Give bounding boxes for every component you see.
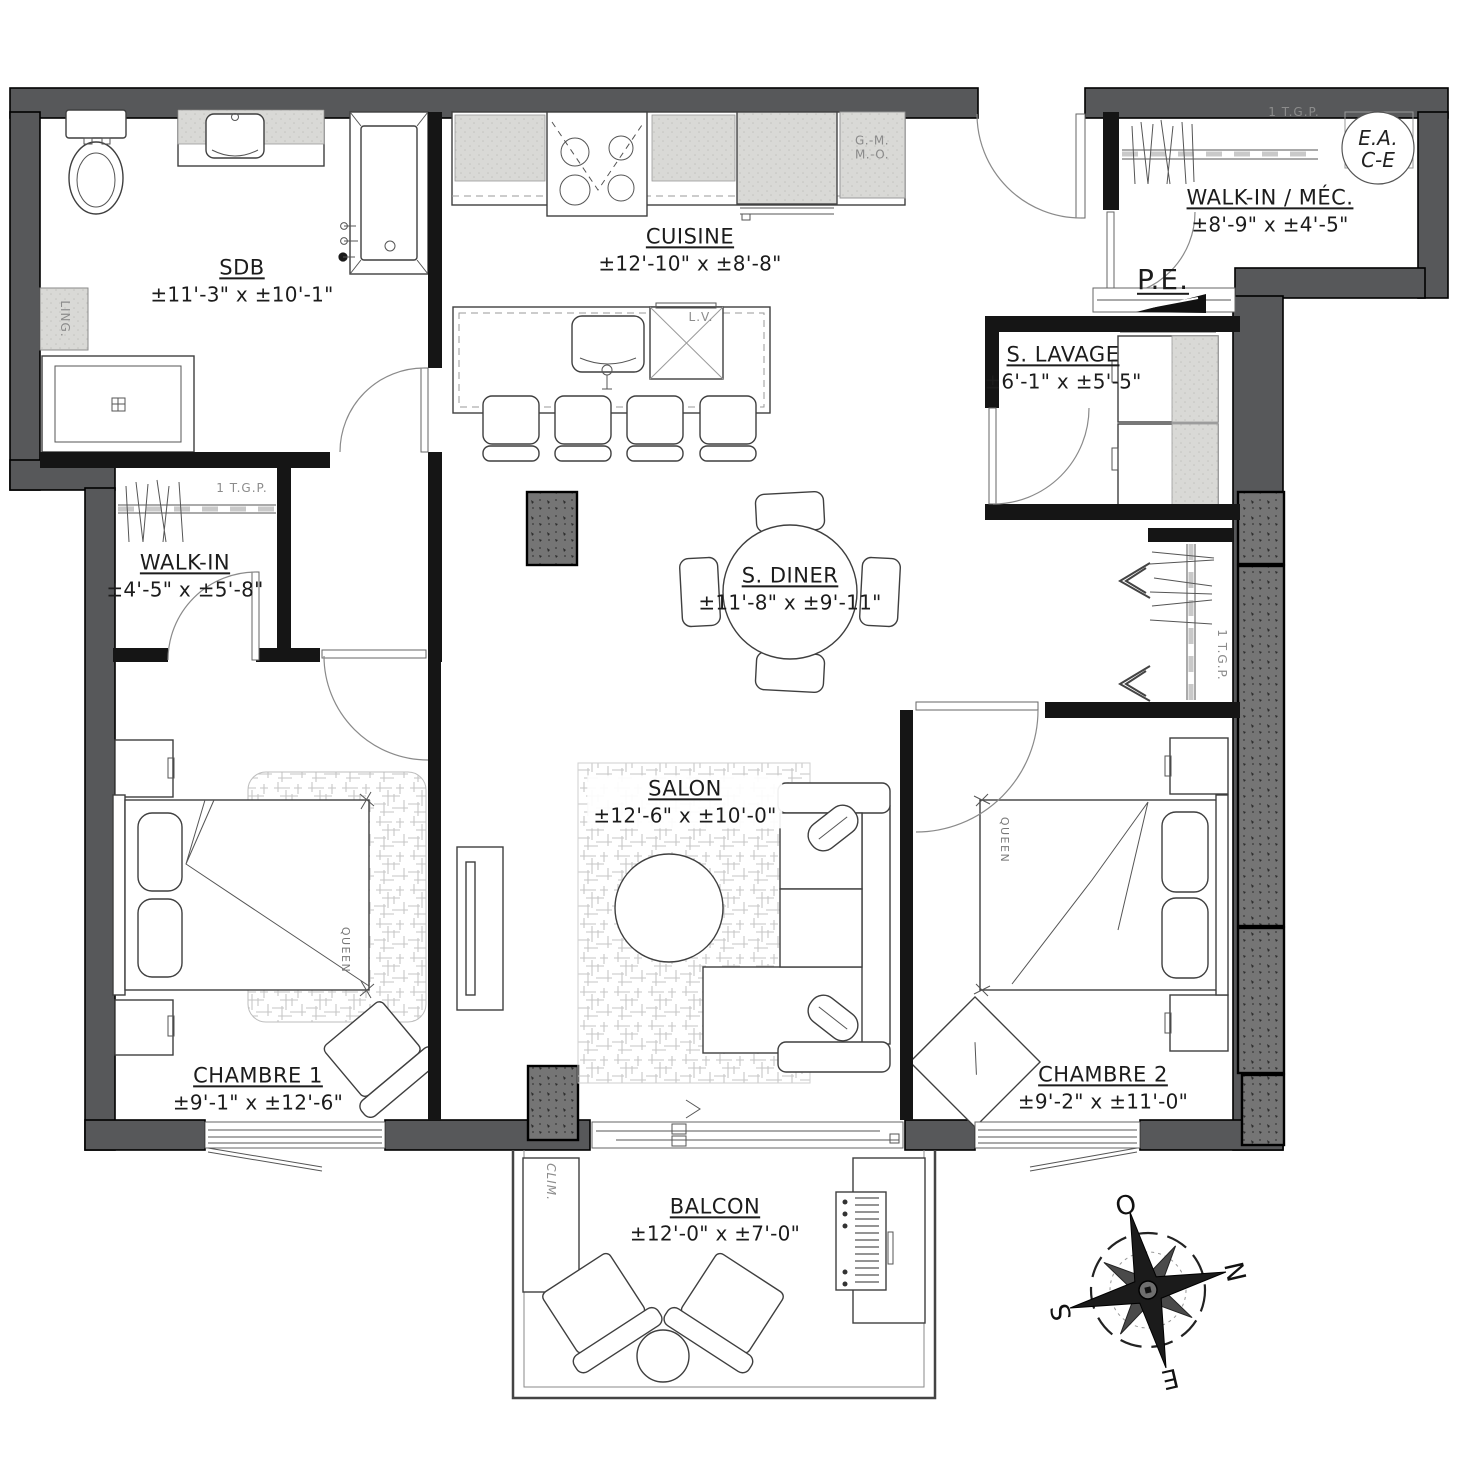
room-label-diner: S. DINER ±11'-8" x ±9'-11"	[698, 562, 881, 615]
room-label-balcon: BALCON ±12'-0" x ±7'-0"	[630, 1193, 800, 1246]
bathtub	[338, 112, 428, 274]
compass-rose: O N S E	[1046, 1189, 1251, 1394]
door-laundry	[989, 408, 1089, 504]
balcony	[513, 1150, 935, 1398]
window-bedroom2	[975, 1122, 1140, 1171]
room-dims: ±11'-3" x ±10'-1"	[150, 282, 333, 308]
bathroom-vanity	[178, 110, 324, 166]
closet-note-1: 1 T.G.P.	[1268, 105, 1319, 121]
room-name: S. DINER	[698, 562, 881, 589]
dishwasher-label: L.V.	[689, 310, 714, 326]
room-dims: ±9'-1" x ±12'-6"	[173, 1090, 343, 1116]
fridge-line2: M.-O.	[855, 148, 889, 162]
water-heater-line1: E.A.	[1358, 127, 1397, 149]
room-label-cuisine: CUISINE ±12'-10" x ±8'-8"	[598, 223, 781, 276]
room-name: BALCON	[630, 1193, 800, 1220]
room-name: CHAMBRE 2	[1018, 1061, 1188, 1088]
room-label-lavage: S. LAVAGE ±6'-1" x ±5'-5"	[984, 341, 1141, 394]
room-label-salon: SALON ±12'-6" x ±10'-0"	[587, 775, 782, 828]
fridge-line1: G.-M.	[855, 134, 889, 148]
compass-north-label: N	[1217, 1259, 1251, 1285]
queen-label-1: QUEEN	[338, 927, 352, 973]
nightstand	[115, 1000, 173, 1055]
stove	[547, 112, 647, 216]
room-dims: ±12'-0" x ±7'-0"	[630, 1221, 800, 1247]
bedroom2-closet	[1120, 544, 1214, 701]
walkin-mec-rod	[1122, 120, 1318, 184]
doors	[168, 114, 1235, 832]
coffee-table	[615, 854, 723, 962]
patio-door	[592, 1100, 903, 1148]
room-label-chambre2: CHAMBRE 2 ±9'-2" x ±11'-0"	[1018, 1061, 1188, 1114]
window-bedroom1	[205, 1122, 385, 1171]
water-heater-line2: C-E	[1358, 149, 1397, 171]
nightstand	[1170, 995, 1228, 1051]
tv-console	[457, 847, 503, 1010]
room-name: WALK-IN	[106, 549, 263, 576]
room-dims: ±12'-10" x ±8'-8"	[598, 251, 781, 277]
water-heater-label: E.A. C-E	[1358, 127, 1397, 171]
room-dims: ±9'-2" x ±11'-0"	[1018, 1089, 1188, 1115]
floor-plan-canvas: O N S E SDB ±11'-3" x ±10'-1" CUISINE ±1…	[0, 0, 1458, 1458]
linen-label: LING.	[56, 300, 72, 337]
room-dims: ±12'-6" x ±10'-0"	[593, 803, 776, 829]
door-bedroom1	[322, 650, 428, 760]
room-label-walkin-mec: WALK-IN / MÉC. ±8'-9" x ±4'-5"	[1187, 184, 1354, 237]
room-label-chambre1: CHAMBRE 1 ±9'-1" x ±12'-6"	[173, 1062, 343, 1115]
room-name: WALK-IN / MÉC.	[1187, 184, 1354, 211]
bed-queen-2	[974, 794, 1228, 996]
kitchen	[452, 112, 905, 461]
room-name: S. LAVAGE	[984, 341, 1141, 368]
fridge-label: G.-M. M.-O.	[855, 134, 889, 163]
door-hall	[977, 114, 1085, 218]
door-bathroom	[340, 368, 428, 452]
windows	[205, 1100, 1140, 1171]
room-name: CHAMBRE 1	[173, 1062, 343, 1089]
ac-label: CLIM.	[542, 1163, 558, 1201]
bbq-grill	[836, 1158, 925, 1323]
room-label-walkin: WALK-IN ±4'-5" x ±5'-8"	[106, 549, 263, 602]
toilet	[66, 110, 126, 214]
nightstand	[115, 740, 173, 797]
side-table	[637, 1330, 689, 1382]
shower	[42, 356, 194, 452]
closet-note-2: 1 T.G.P.	[216, 481, 267, 497]
room-dims: ±11'-8" x ±9'-11"	[698, 590, 881, 616]
nightstand	[1170, 738, 1228, 794]
bed-queen-1	[113, 792, 374, 998]
fridge	[737, 112, 837, 220]
room-name: SDB	[150, 254, 333, 281]
room-name: SALON	[593, 775, 776, 802]
compass-south-label: S	[1046, 1301, 1079, 1324]
compass-west-label: O	[1113, 1189, 1140, 1223]
compass-east-label: E	[1159, 1362, 1182, 1395]
room-label-sdb: SDB ±11'-3" x ±10'-1"	[150, 254, 333, 307]
closet-note-3: 1 T.G.P.	[1213, 629, 1229, 680]
room-dims: ±8'-9" x ±4'-5"	[1187, 212, 1354, 238]
entry-door-label: P.E.	[1137, 262, 1189, 298]
room-dims: ±4'-5" x ±5'-8"	[106, 577, 263, 603]
room-name: CUISINE	[598, 223, 781, 250]
room-dims: ±6'-1" x ±5'-5"	[984, 369, 1141, 395]
queen-label-2: QUEEN	[997, 817, 1011, 863]
